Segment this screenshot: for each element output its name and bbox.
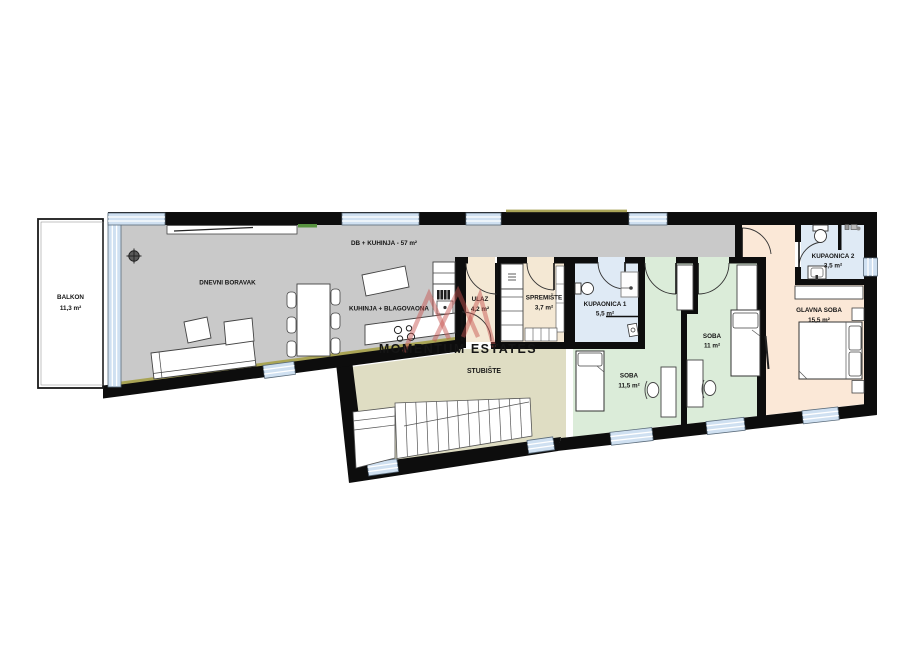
svg-text:11,3 m²: 11,3 m² [60, 305, 81, 312]
svg-text:KUPAONICA 2: KUPAONICA 2 [812, 253, 855, 260]
svg-text:DNEVNI BORAVAK: DNEVNI BORAVAK [199, 280, 256, 287]
svg-text:3,7 m²: 3,7 m² [535, 305, 553, 312]
svg-text:11 m²: 11 m² [704, 343, 720, 350]
svg-text:KUHINJA + BLAGOVAONA: KUHINJA + BLAGOVAONA [349, 306, 429, 313]
svg-text:3,5 m²: 3,5 m² [824, 263, 842, 270]
svg-text:SPREMIŠTE: SPREMIŠTE [526, 293, 562, 302]
svg-text:SOBA: SOBA [703, 333, 722, 340]
svg-text:DB + KUHINJA - 57 m²: DB + KUHINJA - 57 m² [351, 240, 417, 247]
svg-text:MOMENTUM ESTATES: MOMENTUM ESTATES [379, 342, 537, 356]
svg-text:BALKON: BALKON [57, 294, 84, 301]
svg-text:5,5 m²: 5,5 m² [596, 311, 614, 318]
svg-text:15,5 m²: 15,5 m² [808, 317, 830, 324]
svg-text:SOBA: SOBA [620, 373, 639, 380]
svg-text:11,5 m²: 11,5 m² [618, 383, 639, 390]
svg-text:KUPAONICA 1: KUPAONICA 1 [584, 301, 627, 308]
svg-text:GLAVNA SOBA: GLAVNA SOBA [796, 307, 842, 314]
svg-text:STUBIŠTE: STUBIŠTE [467, 366, 501, 375]
